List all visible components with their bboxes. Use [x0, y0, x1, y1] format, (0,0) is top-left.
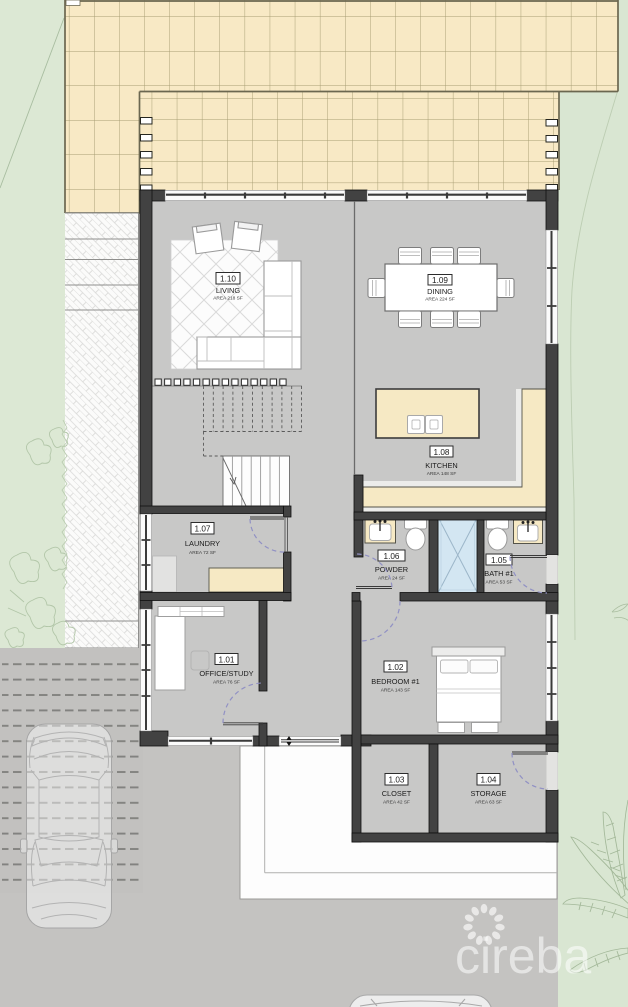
svg-text:1.09: 1.09	[432, 276, 448, 285]
svg-text:AREA 24 SF: AREA 24 SF	[378, 576, 405, 582]
svg-text:AREA 76 SF: AREA 76 SF	[213, 680, 240, 686]
svg-text:1.05: 1.05	[491, 556, 507, 565]
svg-text:1.08: 1.08	[434, 448, 450, 457]
svg-text:cireba: cireba	[455, 928, 591, 984]
svg-text:AREA 53 SF: AREA 53 SF	[486, 580, 513, 586]
svg-text:POWDER: POWDER	[375, 565, 408, 574]
svg-text:LAUNDRY: LAUNDRY	[185, 539, 220, 548]
svg-text:CLOSET: CLOSET	[382, 789, 412, 798]
svg-text:AREA 218 SF: AREA 218 SF	[213, 296, 243, 302]
svg-text:1.03: 1.03	[389, 776, 405, 785]
svg-text:AREA 224 SF: AREA 224 SF	[425, 297, 455, 303]
svg-text:1.07: 1.07	[195, 525, 211, 534]
svg-text:BATH #1: BATH #1	[484, 569, 513, 578]
svg-text:1.10: 1.10	[220, 275, 236, 284]
svg-text:1.06: 1.06	[384, 552, 400, 561]
svg-text:AREA 72 SF: AREA 72 SF	[189, 550, 216, 556]
svg-text:STORAGE: STORAGE	[470, 789, 506, 798]
svg-text:AREA 148 SF: AREA 148 SF	[427, 471, 457, 477]
svg-text:KITCHEN: KITCHEN	[425, 461, 457, 470]
svg-text:1.01: 1.01	[219, 655, 235, 664]
svg-text:BEDROOM #1: BEDROOM #1	[371, 677, 419, 686]
svg-text:AREA 143 SF: AREA 143 SF	[381, 688, 411, 694]
svg-text:AREA 63 SF: AREA 63 SF	[475, 800, 502, 806]
svg-text:1.02: 1.02	[388, 663, 404, 672]
svg-text:AREA 42 SF: AREA 42 SF	[383, 800, 410, 806]
svg-text:LIVING: LIVING	[216, 286, 240, 295]
svg-text:1.04: 1.04	[481, 776, 497, 785]
svg-text:OFFICE/STUDY: OFFICE/STUDY	[199, 669, 253, 678]
svg-text:DINING: DINING	[427, 287, 453, 296]
